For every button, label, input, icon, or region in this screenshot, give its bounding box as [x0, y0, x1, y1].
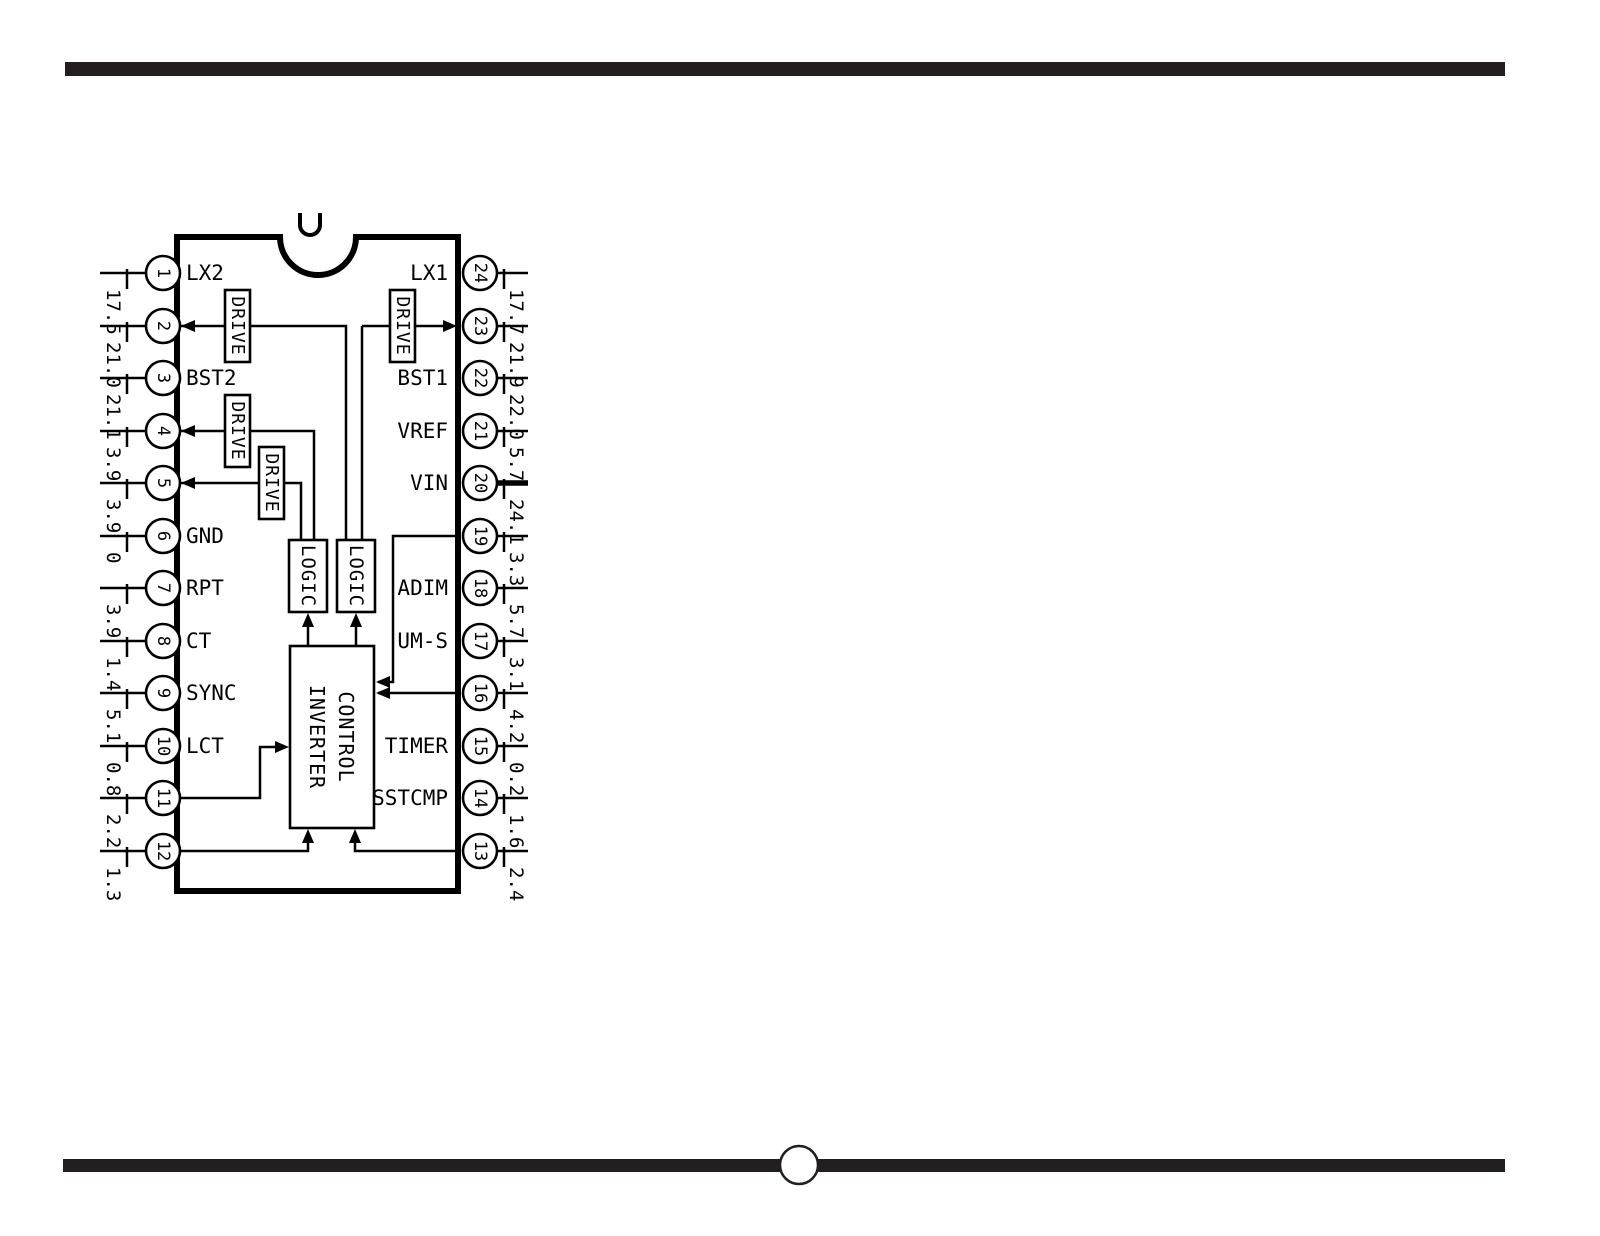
pin-6-value: 0 [102, 552, 124, 563]
drive-block-2-label: DRIVE [227, 401, 248, 460]
logic-block-1-label: LOGIC [297, 545, 319, 607]
pin-4-number: 4 [153, 426, 173, 436]
label-bst1: BST1 [397, 366, 448, 390]
pin-10-number: 10 [153, 736, 173, 756]
inverter-control-label-line2: CONTROL [334, 691, 358, 782]
label-rpt: RPT [186, 576, 224, 600]
pin-2-value: 21.0 [102, 342, 124, 388]
pin-16-value: 4.2 [505, 709, 527, 743]
pin-9-value: 5.1 [102, 709, 124, 743]
pin-18-value: 5.7 [505, 604, 527, 638]
pin-22-number: 22 [470, 368, 490, 388]
label-adim: ADIM [397, 576, 448, 600]
pin-18-number: 18 [470, 578, 490, 598]
footer-circle-marker [780, 1146, 818, 1184]
pin-11-value: 2.2 [102, 814, 124, 848]
pin-3-number: 3 [153, 373, 173, 383]
pin-16-number: 16 [470, 683, 490, 703]
ic-functional-diagram: DRIVE DRIVE DRIVE DRIVE LOGIC LOGIC INVE… [0, 0, 1600, 1236]
pin-7-number: 7 [153, 583, 173, 593]
pin-4-value: 3.9 [102, 447, 124, 481]
label-timer: TIMER [385, 734, 449, 758]
label-lct: LCT [186, 734, 224, 758]
pin-9-number: 9 [153, 688, 173, 698]
pin-17-value: 3.1 [505, 657, 527, 691]
document-page: DRIVE DRIVE DRIVE DRIVE LOGIC LOGIC INVE… [0, 0, 1600, 1236]
pin-11-number: 11 [153, 788, 173, 808]
pin-5-value: 3.9 [102, 499, 124, 533]
partial-letter-u-glyph [300, 213, 320, 235]
pin-12-number: 12 [153, 841, 173, 861]
pin-13-number: 13 [470, 841, 490, 861]
drive-block-4-label: DRIVE [392, 296, 413, 355]
pin-12-value: 1.3 [102, 867, 124, 901]
pin-21-value: 5.7 [505, 447, 527, 481]
label-sstcmp: SSTCMP [372, 786, 448, 810]
pin-10-value: 0.8 [102, 762, 124, 796]
pin-22-value: 22.0 [505, 394, 527, 440]
pin-20-number: 20 [470, 473, 490, 493]
label-sync: SYNC [186, 681, 237, 705]
pin-5-number: 5 [153, 478, 173, 488]
pin-1-value: 17.5 [102, 289, 124, 335]
inverter-control-block [290, 646, 374, 828]
pin-15-number: 15 [470, 736, 490, 756]
pin-1-number: 1 [153, 268, 173, 278]
pin-13-value: 2.4 [505, 867, 527, 901]
pin-20-value: 24.1 [505, 499, 527, 545]
pin-17-number: 17 [470, 631, 490, 651]
pin-14-value: 1.6 [505, 814, 527, 848]
pin-3-value: 21.1 [102, 394, 124, 440]
top-rule-bar [65, 62, 1505, 76]
pins-right: 24 17.7 23 21.9 22 22.0 21 5.7 [463, 256, 528, 901]
drive-block-3-label: DRIVE [261, 453, 282, 512]
label-ct: CT [186, 629, 212, 653]
drive-block-1-label: DRIVE [227, 296, 248, 355]
label-lx2: LX2 [186, 261, 224, 285]
label-um-s: UM-S [397, 629, 448, 653]
label-gnd: GND [186, 524, 224, 548]
inverter-control-label-line1: INVERTER [305, 685, 329, 789]
pin-21-number: 21 [470, 421, 490, 441]
pin-8-value: 1.4 [102, 657, 124, 691]
pin-2-number: 2 [153, 321, 173, 331]
pin-23-value: 21.9 [505, 342, 527, 388]
pin-24-value: 17.7 [505, 289, 527, 335]
logic-block-2-label: LOGIC [345, 545, 367, 607]
pin-6-number: 6 [153, 531, 173, 541]
label-bst2: BST2 [186, 366, 237, 390]
label-lx1: LX1 [410, 261, 448, 285]
pin-15-value: 0.2 [505, 762, 527, 796]
pin-19-number: 19 [470, 526, 490, 546]
pin-7-value: 3.9 [102, 604, 124, 638]
label-vref: VREF [397, 419, 448, 443]
pin-24-number: 24 [470, 263, 490, 283]
pin-14-number: 14 [470, 788, 490, 808]
label-vin: VIN [410, 471, 448, 495]
pin-8-number: 8 [153, 636, 173, 646]
pins-left: 1 17.5 2 21.0 3 21.1 4 3.9 5 [100, 256, 180, 901]
pin-23-number: 23 [470, 316, 490, 336]
pin-19-value: 3.3 [505, 552, 527, 586]
